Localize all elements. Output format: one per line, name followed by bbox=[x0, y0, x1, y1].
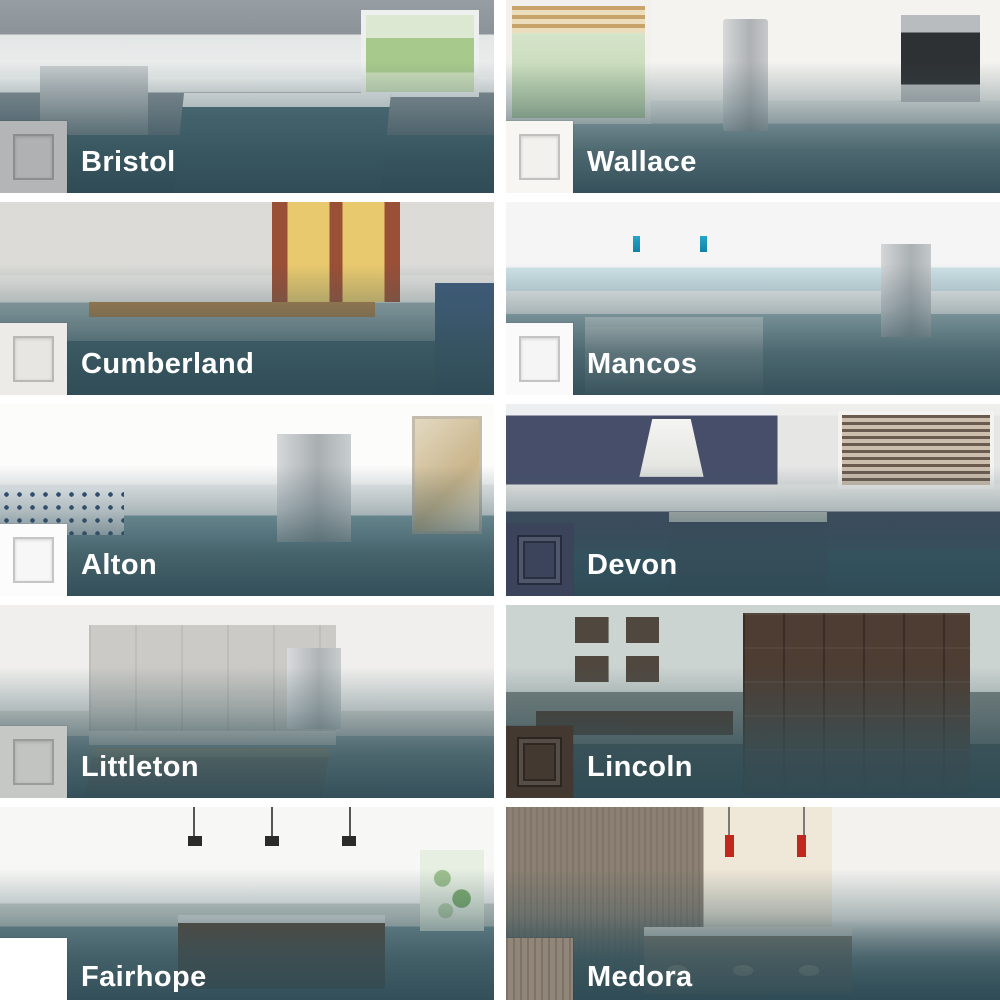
tile-devon[interactable]: Devon bbox=[506, 404, 1000, 597]
door-panel bbox=[13, 537, 54, 583]
kitchen-photo bbox=[506, 807, 1000, 1000]
style-name: Medora bbox=[587, 961, 693, 994]
photo-detail bbox=[669, 512, 827, 597]
kitchen-photo bbox=[506, 605, 1000, 798]
door-swatch bbox=[0, 938, 67, 1000]
door-swatch bbox=[506, 323, 573, 395]
style-name: Lincoln bbox=[587, 751, 693, 784]
style-name: Cumberland bbox=[81, 348, 254, 381]
door-swatch bbox=[0, 121, 67, 193]
door-swatch bbox=[0, 726, 67, 798]
style-name: Littleton bbox=[81, 751, 199, 784]
style-name: Devon bbox=[587, 549, 678, 582]
door-panel bbox=[13, 134, 54, 180]
photo-detail bbox=[178, 915, 385, 989]
photo-detail bbox=[842, 415, 990, 484]
style-name: Fairhope bbox=[81, 961, 207, 994]
photo-detail bbox=[420, 850, 484, 931]
tile-medora[interactable]: Medora bbox=[506, 807, 1000, 1000]
photo-detail bbox=[506, 0, 651, 124]
style-name: Mancos bbox=[587, 348, 697, 381]
photo-detail bbox=[89, 302, 376, 317]
photo-detail bbox=[575, 617, 659, 683]
photo-detail bbox=[172, 93, 391, 193]
door-panel bbox=[519, 739, 560, 785]
photo-detail bbox=[881, 244, 930, 337]
tile-mancos[interactable]: Mancos bbox=[506, 202, 1000, 395]
door-panel bbox=[519, 134, 560, 180]
kitchen-photo bbox=[506, 202, 1000, 395]
kitchen-photo bbox=[0, 605, 494, 798]
photo-detail bbox=[901, 15, 980, 102]
door-panel bbox=[519, 537, 560, 583]
door-swatch bbox=[0, 524, 67, 596]
style-name: Bristol bbox=[81, 146, 176, 179]
photo-detail bbox=[615, 202, 743, 252]
tile-lincoln[interactable]: Lincoln bbox=[506, 605, 1000, 798]
photo-detail bbox=[435, 283, 494, 395]
door-panel bbox=[13, 336, 54, 382]
kitchen-photo bbox=[0, 0, 494, 193]
door-swatch bbox=[506, 938, 573, 1000]
tile-wallace[interactable]: Wallace bbox=[506, 0, 1000, 193]
door-swatch bbox=[506, 121, 573, 193]
tile-alton[interactable]: Alton bbox=[0, 404, 494, 597]
door-swatch bbox=[506, 524, 573, 596]
tile-fairhope[interactable]: Fairhope bbox=[0, 807, 494, 1000]
door-panel bbox=[13, 739, 54, 785]
kitchen-photo bbox=[506, 404, 1000, 597]
door-swatch bbox=[506, 726, 573, 798]
photo-detail bbox=[188, 807, 356, 846]
style-name: Alton bbox=[81, 549, 157, 582]
kitchen-photo bbox=[506, 0, 1000, 193]
photo-detail bbox=[287, 648, 341, 729]
photo-detail bbox=[704, 807, 832, 857]
photo-detail bbox=[743, 613, 970, 798]
kitchen-photo bbox=[0, 807, 494, 1000]
tile-littleton[interactable]: Littleton bbox=[0, 605, 494, 798]
door-panel bbox=[519, 336, 560, 382]
photo-detail bbox=[277, 434, 351, 542]
tile-bristol[interactable]: Bristol bbox=[0, 0, 494, 193]
style-tile-grid: Bristol Wallace Cumberland bbox=[0, 0, 1000, 1000]
style-name: Wallace bbox=[587, 146, 697, 179]
door-swatch bbox=[0, 323, 67, 395]
photo-detail bbox=[723, 19, 767, 131]
tile-cumberland[interactable]: Cumberland bbox=[0, 202, 494, 395]
photo-detail bbox=[361, 10, 480, 97]
kitchen-photo bbox=[0, 404, 494, 597]
photo-detail bbox=[272, 202, 400, 302]
photo-detail bbox=[415, 419, 479, 531]
